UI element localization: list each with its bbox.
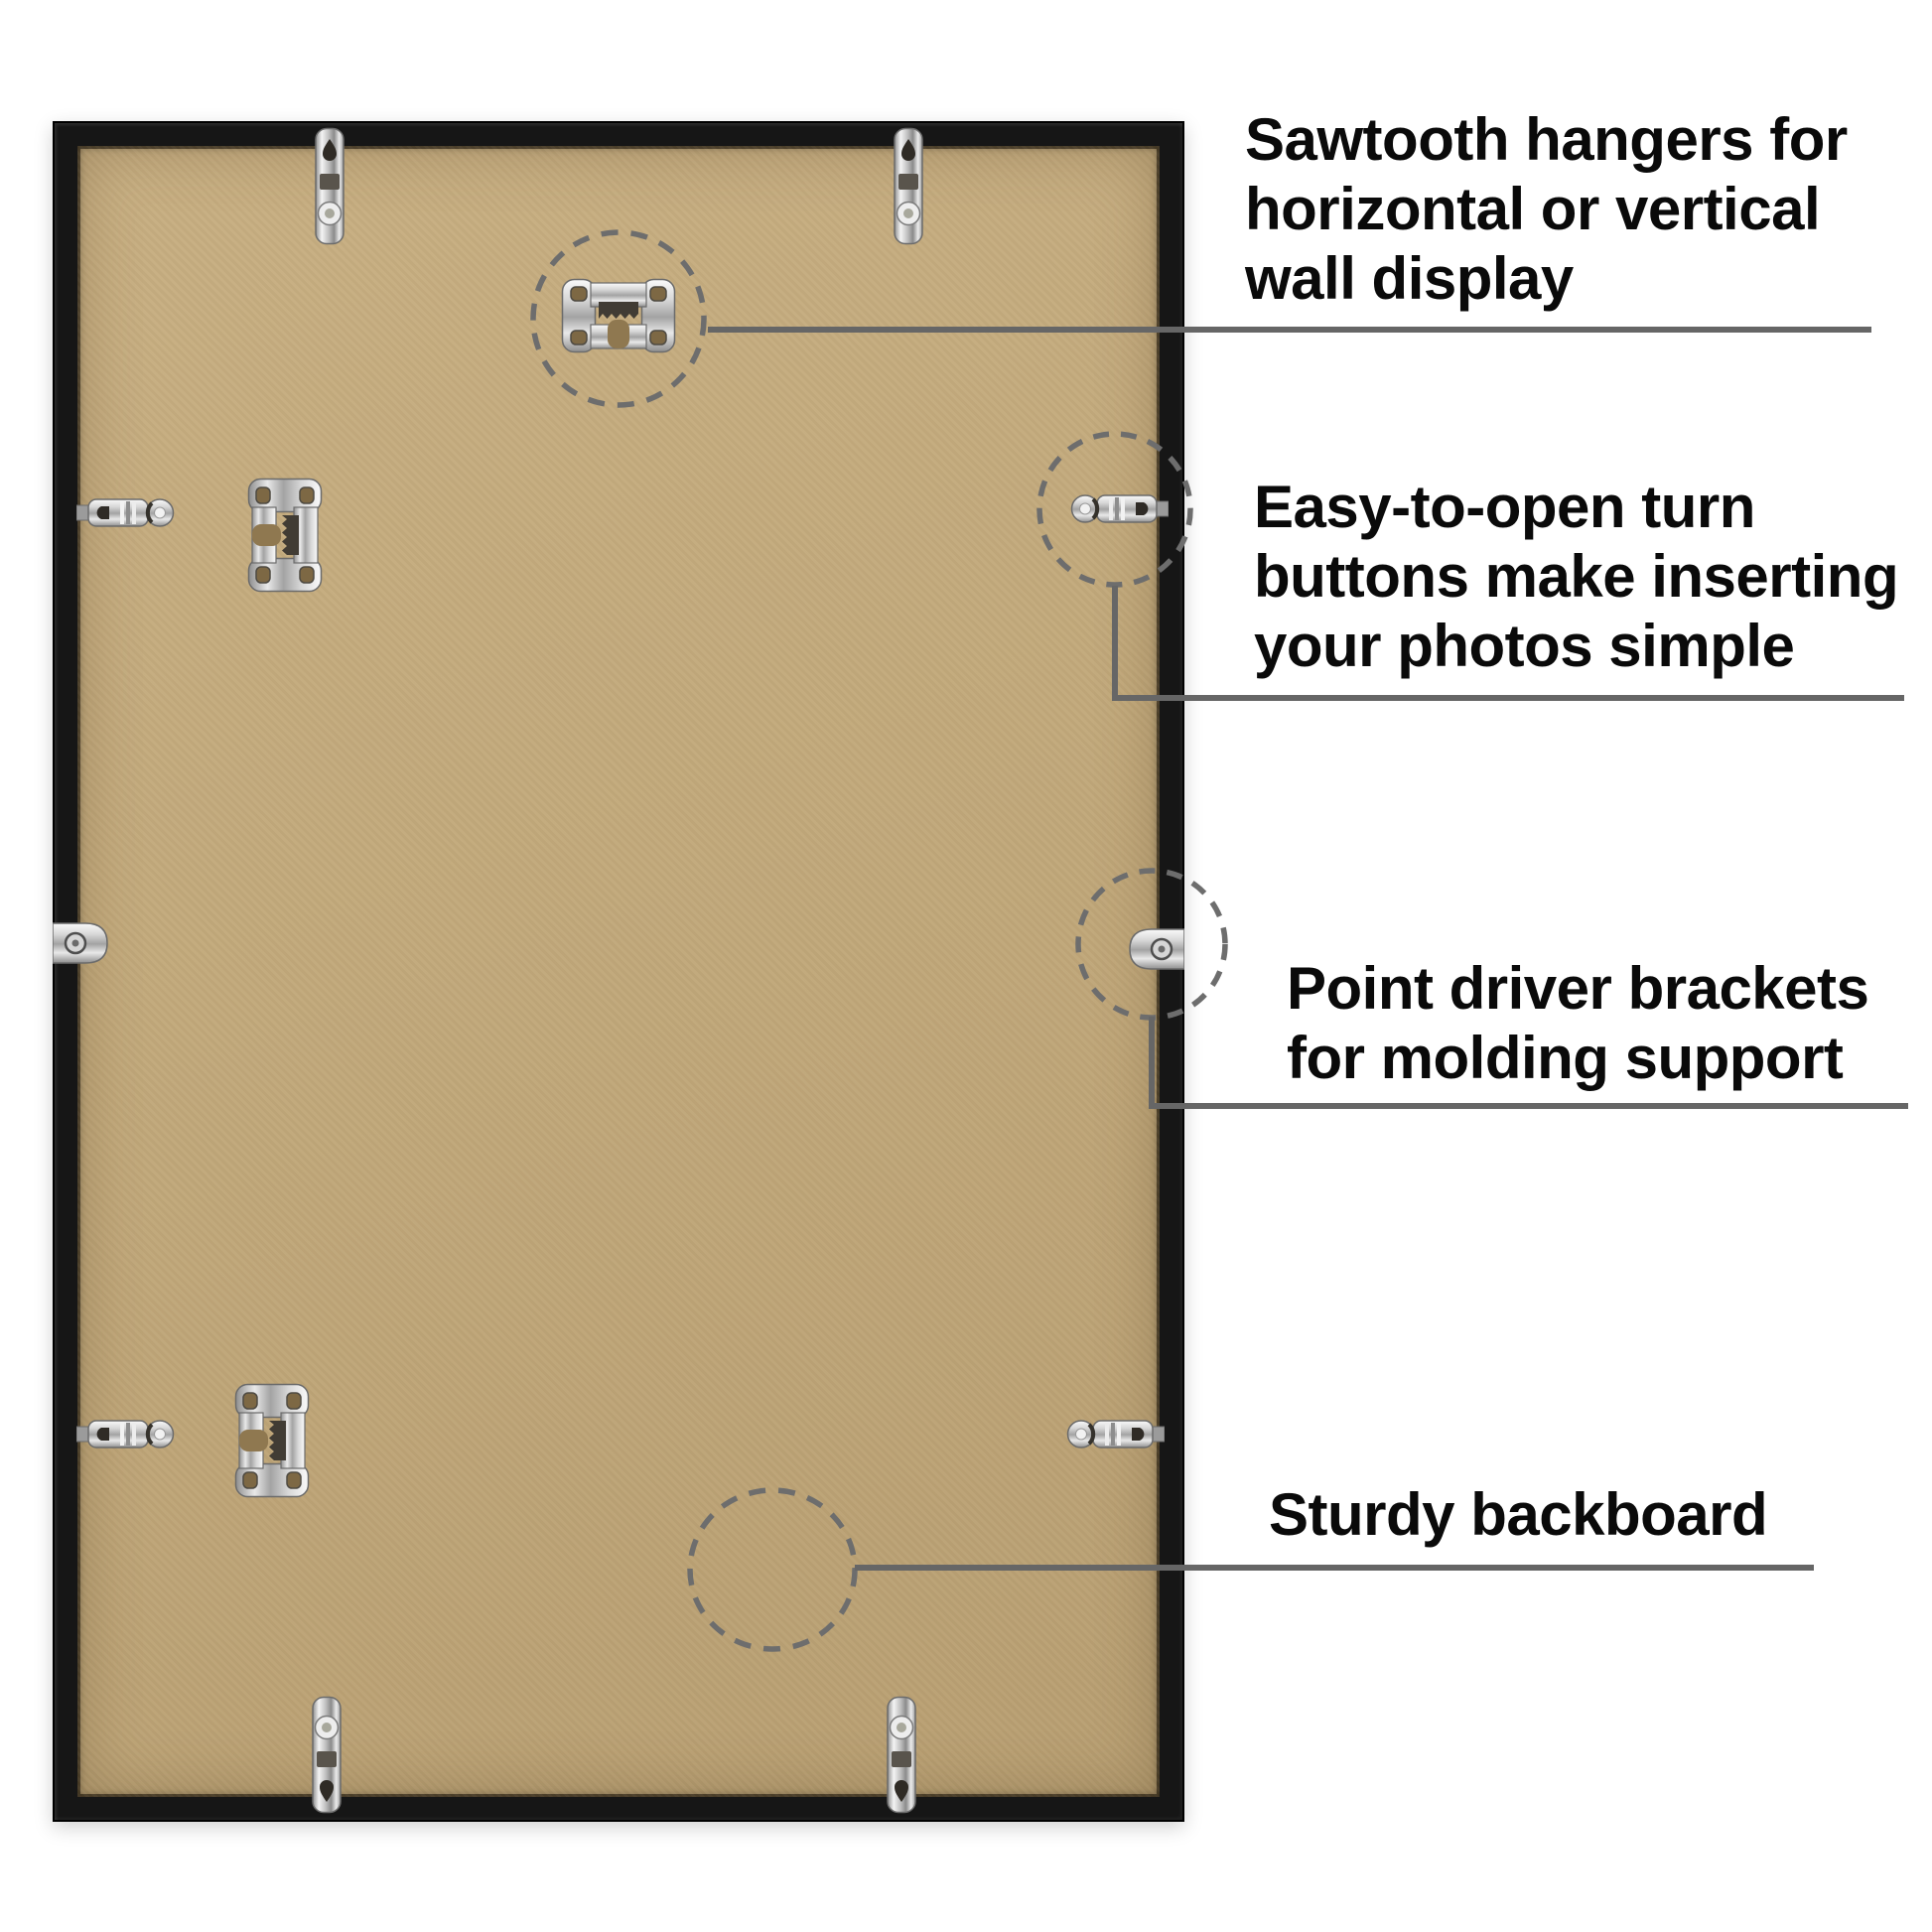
point-driver-highlight-circle [1075,868,1228,1026]
callout-turn-buttons: Easy-to-open turn buttons make inserting… [1254,473,1898,681]
backboard-connector-line [855,1565,1814,1571]
callout-sawtooth-hangers: Sawtooth hangers for horizontal or verti… [1245,105,1848,314]
callout-line: Sturdy backboard [1269,1480,1767,1550]
turn-button-highlight-circle [1036,431,1193,593]
sawtooth-hanger-icon [251,477,318,593]
turn-button-connector-line-vertical [1112,586,1118,701]
sawtooth-hanger-icon [238,1382,305,1498]
callout-point-driver-brackets: Point driver brackets for molding suppor… [1287,954,1868,1093]
turn-button-icon [1059,1418,1165,1450]
turn-button-clip-icon [313,127,346,245]
turn-button-icon [76,496,182,529]
sawtooth-connector-line [708,327,1871,333]
point-driver-bracket-icon [53,920,109,966]
callout-line: horizontal or vertical [1245,175,1848,244]
callout-sturdy-backboard: Sturdy backboard [1269,1480,1767,1550]
callout-line: wall display [1245,244,1848,314]
turn-button-clip-icon [892,127,925,245]
point-driver-connector-line [1149,1103,1908,1109]
callout-line: Point driver brackets [1287,954,1868,1024]
turn-button-clip-icon [885,1696,918,1814]
point-driver-connector-line-vertical [1149,1017,1155,1109]
product-photo: Sawtooth hangers for horizontal or verti… [0,0,1932,1932]
sawtooth-hanger-highlight-circle [529,229,708,413]
callout-line: buttons make inserting [1254,542,1898,612]
callout-line: Sawtooth hangers for [1245,105,1848,175]
turn-button-icon [76,1418,182,1450]
turn-button-connector-line [1112,695,1904,701]
callout-line: Easy-to-open turn [1254,473,1898,542]
callout-line: your photos simple [1254,612,1898,681]
backboard-highlight-circle [687,1487,858,1657]
callout-line: for molding support [1287,1024,1868,1093]
turn-button-clip-icon [310,1696,344,1814]
